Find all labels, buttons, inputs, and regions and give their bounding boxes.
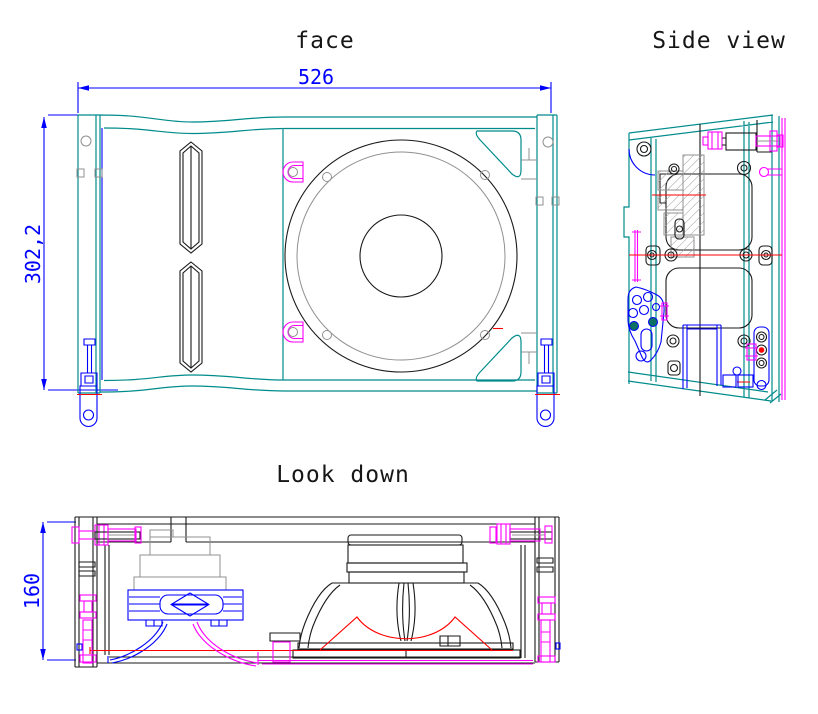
- face-width-value: 526: [298, 65, 334, 89]
- cad-canvas: face Side view Look down 526 302,2: [0, 0, 818, 714]
- look-down-view-title: Look down: [276, 462, 410, 488]
- side-view-title: Side view: [652, 28, 786, 54]
- cad-drawing-page: face Side view Look down 526 302,2: [0, 0, 818, 714]
- face-height-value: 302,2: [21, 224, 45, 284]
- depth-value: 160: [20, 573, 44, 609]
- face-view-title: face: [295, 28, 354, 54]
